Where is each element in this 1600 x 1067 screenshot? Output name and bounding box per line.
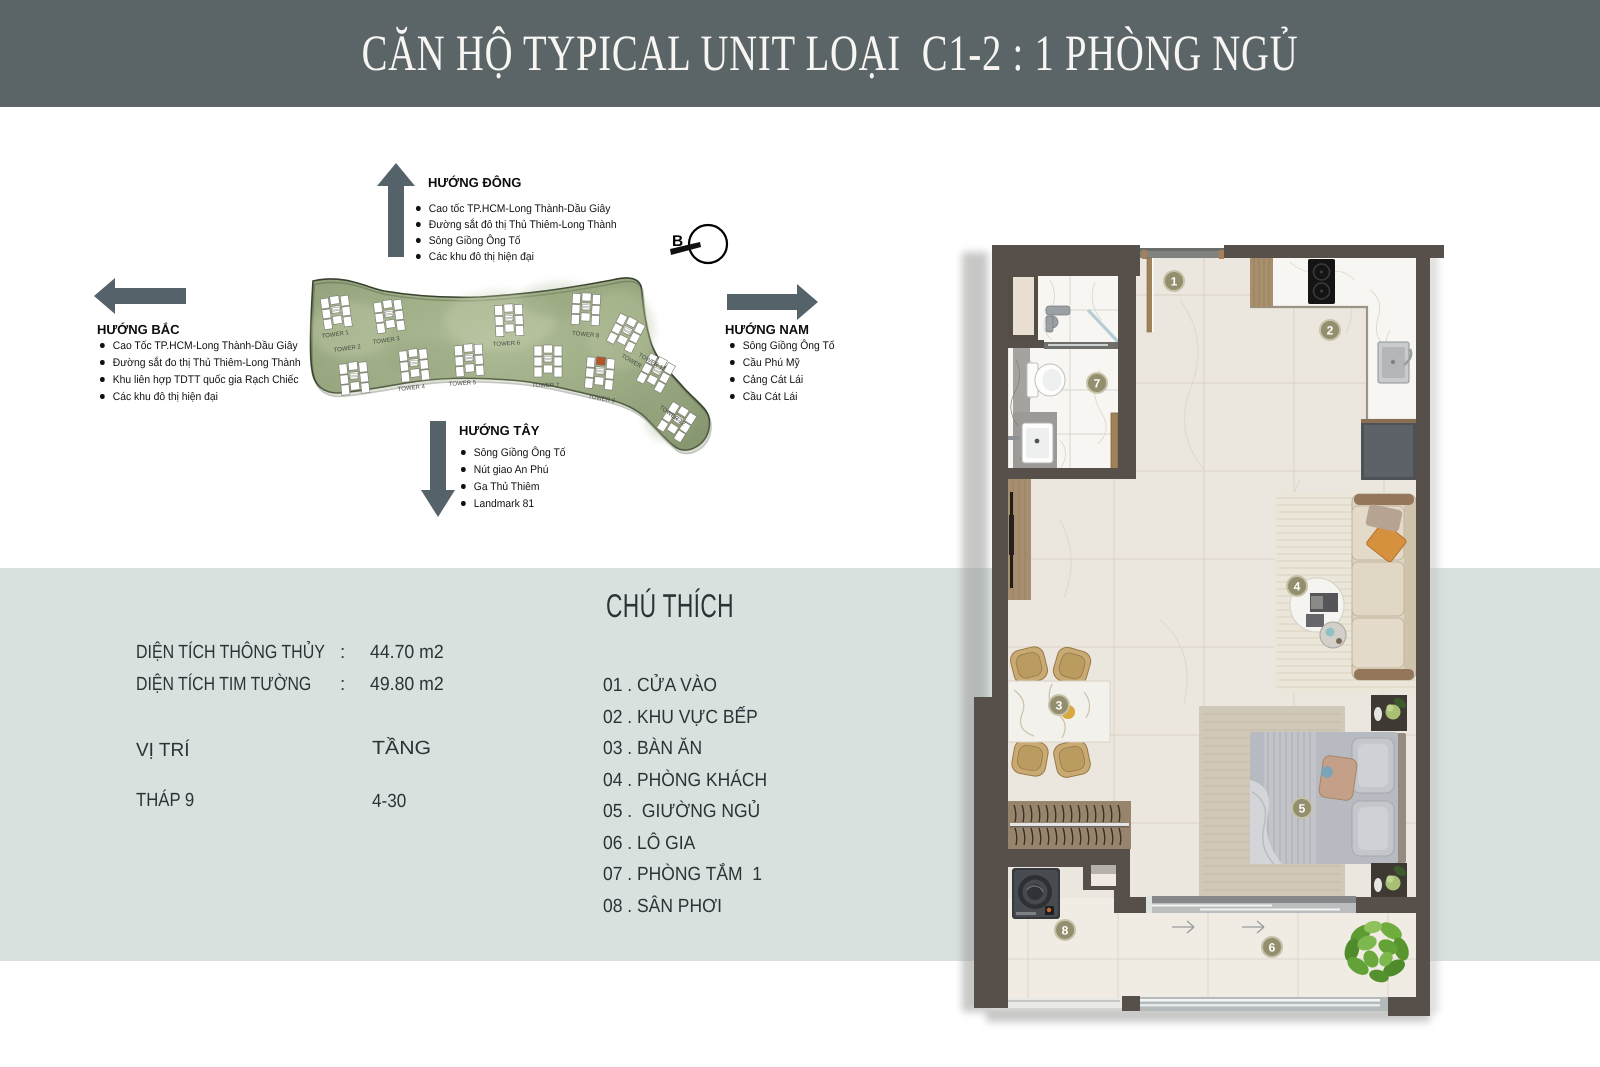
svg-text:1: 1 xyxy=(1171,274,1178,288)
svg-text:5: 5 xyxy=(1299,801,1306,815)
svg-text:3: 3 xyxy=(1056,698,1063,712)
svg-text:B: B xyxy=(672,233,683,250)
svg-text:8: 8 xyxy=(1062,923,1069,937)
svg-text:4: 4 xyxy=(1294,579,1301,593)
svg-text:7: 7 xyxy=(1094,376,1101,390)
svg-text:TOWER 7: TOWER 7 xyxy=(532,382,560,389)
svg-text:6: 6 xyxy=(1269,940,1276,954)
svg-text:TOWER 6: TOWER 6 xyxy=(493,340,521,348)
svg-text:2: 2 xyxy=(1327,323,1334,337)
